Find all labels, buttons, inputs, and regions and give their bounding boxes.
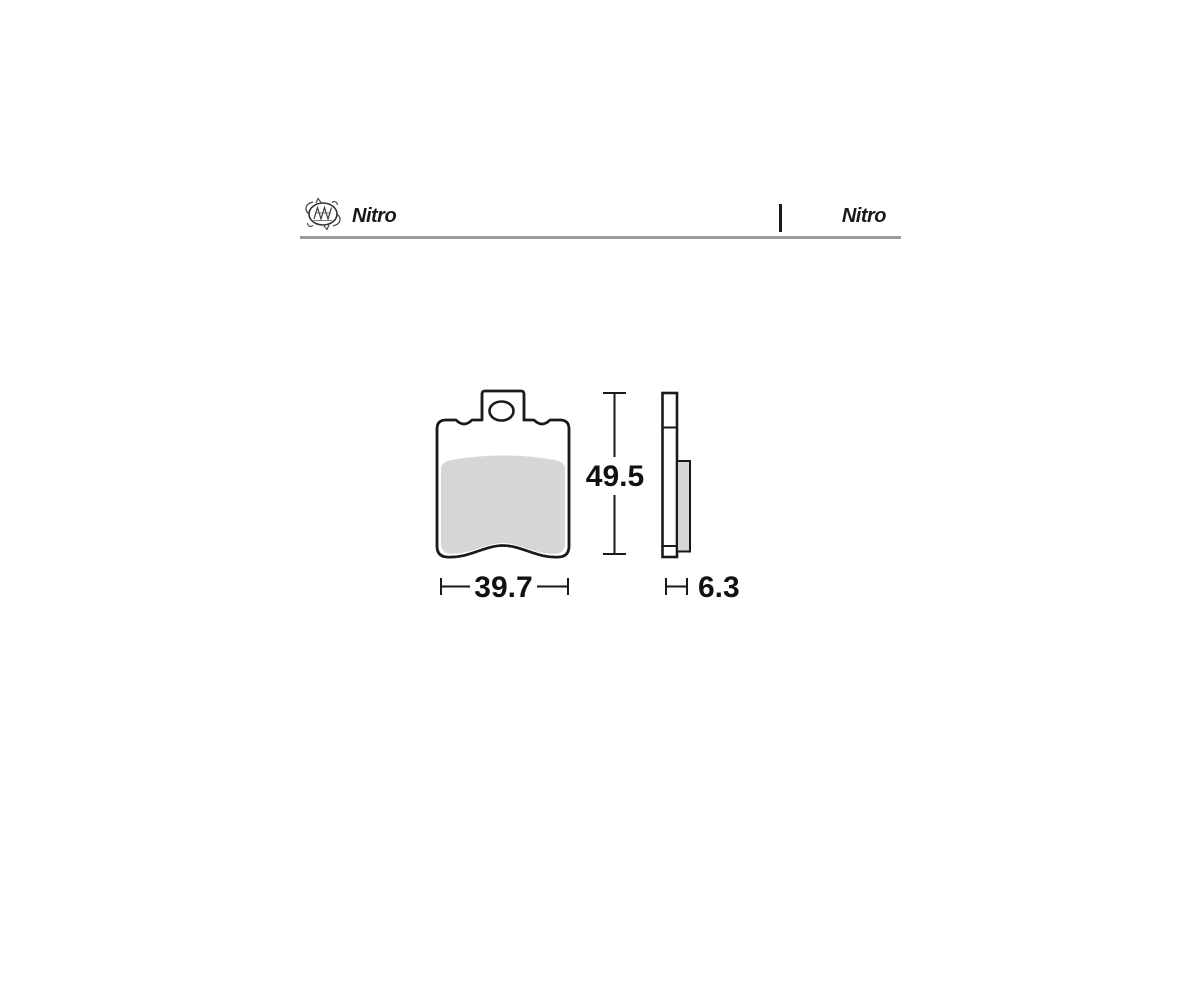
friction-material-side [677,461,690,552]
width-dimension-label: 39.7 [474,571,532,604]
brand-name-right: Nitro [726,205,886,228]
thickness-dimension [666,578,687,595]
height-dimension-label: 49.5 [586,460,644,493]
backing-plate-side [663,393,678,557]
front-view [437,391,569,557]
brake-pad-drawing-svg: 49.5 39.7 6.3 [410,370,760,630]
friction-material [441,456,565,554]
thickness-dimension-label: 6.3 [698,571,740,604]
swirl-logo-icon [302,197,344,231]
catalog-page: Nitro Nitro 49.5 [0,0,1200,1000]
brand-name-left: Nitro [352,205,396,228]
mounting-hole [490,402,514,421]
brake-pad-drawing: 49.5 39.7 6.3 [410,370,760,630]
side-view [663,393,691,557]
brand-logo-icon [302,197,344,231]
header-rule [300,236,901,239]
